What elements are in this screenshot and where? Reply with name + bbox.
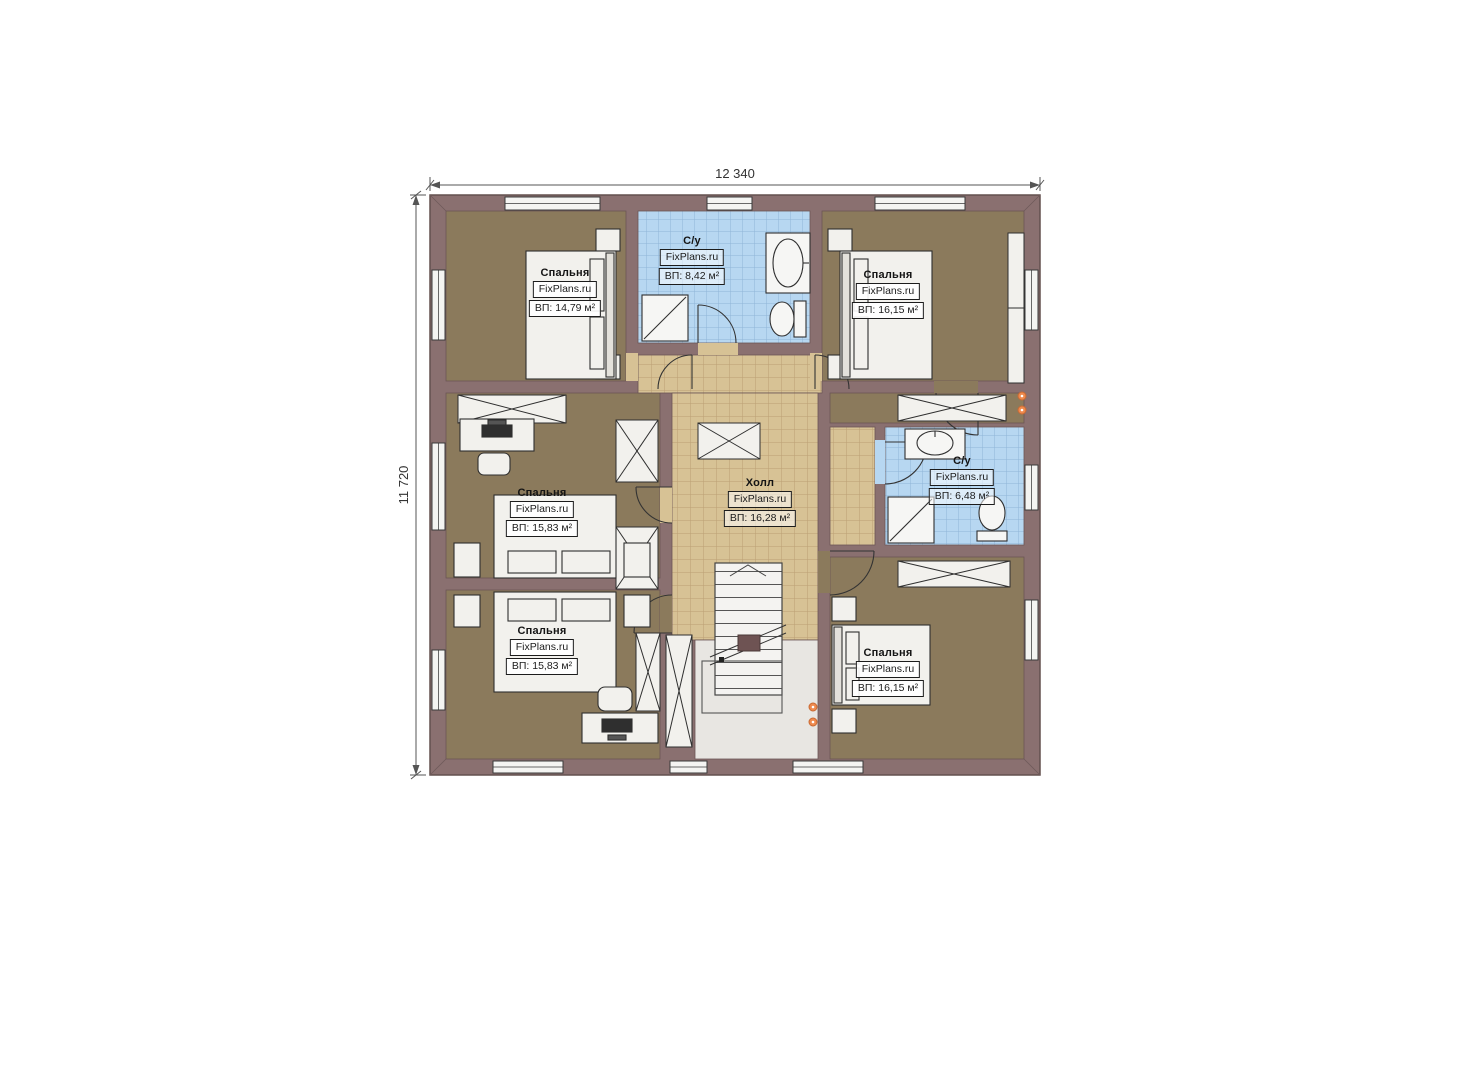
room-area: ВП: 14,79 м² — [529, 300, 601, 317]
room-label-bathroom-right: С/у FixPlans.ru ВП: 6,48 м² — [929, 455, 995, 505]
room-watermark: FixPlans.ru — [930, 469, 995, 486]
pillow — [590, 317, 604, 369]
room-area: ВП: 15,83 м² — [506, 520, 578, 537]
room-label-bedroom-top-right: Спальня FixPlans.ru ВП: 16,15 м² — [852, 269, 924, 319]
room-name: С/у — [953, 455, 971, 467]
window — [493, 761, 563, 773]
window — [875, 197, 965, 210]
room-name: Спальня — [864, 269, 913, 281]
room-label-bedroom-middle-left: Спальня FixPlans.ru ВП: 15,83 м² — [506, 487, 578, 537]
room-area: ВП: 16,28 м² — [724, 510, 796, 527]
wardrobe-icon — [698, 423, 760, 459]
nightstand — [624, 595, 650, 627]
floor-hall-east — [830, 427, 875, 545]
room-name: Спальня — [518, 487, 567, 499]
room-watermark: FixPlans.ru — [856, 283, 921, 300]
room-area: ВП: 15,83 м² — [506, 658, 578, 675]
room-label-bedroom-bottom-right: Спальня FixPlans.ru ВП: 16,15 м² — [852, 647, 924, 697]
nightstand — [624, 543, 650, 577]
pillow — [854, 317, 868, 369]
dimension-left-label: 11 720 — [396, 466, 411, 505]
dimension-left: 11 720 — [396, 191, 426, 779]
room-label-bedroom-bottom-left: Спальня FixPlans.ru ВП: 15,83 м² — [506, 625, 578, 675]
pillow — [562, 551, 610, 573]
floor-plan: 12 340 11 720 — [430, 195, 1040, 775]
stair-arrow-marker — [719, 657, 724, 662]
window — [1025, 465, 1038, 510]
wardrobe-icon — [636, 633, 660, 711]
window — [432, 650, 445, 710]
window — [707, 197, 752, 210]
room-watermark: FixPlans.ru — [510, 639, 575, 656]
closet-strip — [1008, 233, 1024, 383]
newel-post — [738, 635, 760, 651]
floor-plan-page: 12 340 11 720 — [0, 0, 1473, 1080]
room-watermark: FixPlans.ru — [660, 249, 725, 266]
chair — [598, 687, 632, 711]
sink-icon — [766, 233, 810, 293]
room-watermark: FixPlans.ru — [533, 281, 598, 298]
shower-icon — [642, 295, 688, 341]
nightstand — [832, 597, 856, 621]
wardrobe-icon — [616, 420, 658, 482]
room-watermark: FixPlans.ru — [856, 661, 921, 678]
nightstand — [832, 709, 856, 733]
wardrobe-icon — [898, 561, 1010, 587]
pillow — [508, 599, 556, 621]
room-label-bathroom-top: С/у FixPlans.ru ВП: 8,42 м² — [659, 235, 725, 285]
room-watermark: FixPlans.ru — [510, 501, 575, 518]
window — [505, 197, 600, 210]
chair — [478, 453, 510, 475]
window — [670, 761, 707, 773]
nightstand — [454, 543, 480, 577]
wardrobe-icon — [898, 395, 1006, 421]
computer-icon — [608, 735, 626, 740]
window — [1025, 270, 1038, 330]
computer-icon — [602, 719, 632, 732]
dimension-top: 12 340 — [426, 166, 1044, 191]
room-name: Спальня — [518, 625, 567, 637]
dimension-top-label: 12 340 — [715, 166, 755, 181]
nightstand — [454, 595, 480, 627]
room-label-bedroom-top-left: Спальня FixPlans.ru ВП: 14,79 м² — [529, 267, 601, 317]
window — [432, 443, 445, 530]
room-area: ВП: 16,15 м² — [852, 302, 924, 319]
room-label-hall: Холл FixPlans.ru ВП: 16,28 м² — [724, 477, 796, 527]
room-area: ВП: 6,48 м² — [929, 488, 995, 505]
nightstand — [596, 229, 620, 251]
window — [793, 761, 863, 773]
shower-icon — [888, 497, 934, 543]
room-name: Холл — [746, 477, 774, 489]
wardrobe-icon — [666, 635, 692, 747]
window — [432, 270, 445, 340]
nightstand — [828, 229, 852, 251]
pillow — [562, 599, 610, 621]
computer-icon — [482, 425, 512, 437]
stairs — [702, 563, 786, 713]
toilet-icon — [770, 301, 806, 337]
window — [1025, 600, 1038, 660]
room-area: ВП: 8,42 м² — [659, 268, 725, 285]
room-area: ВП: 16,15 м² — [852, 680, 924, 697]
pillow — [508, 551, 556, 573]
room-name: С/у — [683, 235, 701, 247]
room-name: Спальня — [864, 647, 913, 659]
floor-hall-top-strip — [638, 355, 822, 393]
computer-icon — [488, 420, 506, 425]
room-watermark: FixPlans.ru — [728, 491, 793, 508]
room-name: Спальня — [541, 267, 590, 279]
